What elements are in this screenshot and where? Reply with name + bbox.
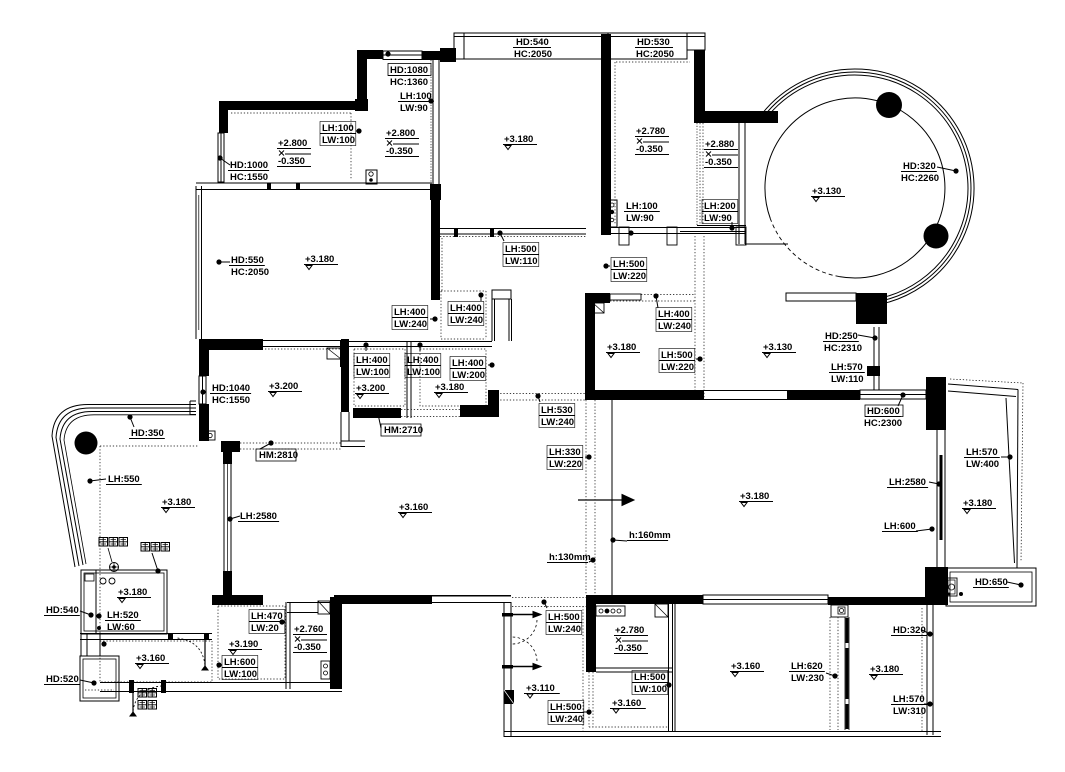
svg-text:LW:200: LW:200 [452,370,485,381]
svg-text:LW:400: LW:400 [966,459,999,470]
svg-text:HC:1550: HC:1550 [230,172,268,183]
svg-text:LH:570: LH:570 [893,694,925,705]
svg-text:HD:1080: HD:1080 [390,65,428,76]
svg-text:LW:90: LW:90 [704,213,732,224]
svg-text:-0.350: -0.350 [615,643,642,654]
svg-text:HD:550: HD:550 [231,255,264,266]
svg-text:-0.350: -0.350 [705,157,732,168]
svg-text:LH:400: LH:400 [452,358,484,369]
svg-text:LW:110: LW:110 [831,374,864,385]
svg-text:LW:310: LW:310 [893,706,926,717]
svg-text:LW:240: LW:240 [450,315,483,326]
svg-text:+3.130: +3.130 [812,186,841,197]
svg-text:+2.800: +2.800 [278,138,307,149]
svg-text:HD:600: HD:600 [867,406,900,417]
svg-text:+3.180: +3.180 [118,587,147,598]
svg-text:HD:540: HD:540 [46,605,79,616]
svg-text:LW:240: LW:240 [541,417,574,428]
svg-text:HD:1000: HD:1000 [230,160,268,171]
svg-text:LH:600: LH:600 [224,657,256,668]
svg-text:+3.180: +3.180 [435,382,464,393]
svg-text:LH:200: LH:200 [704,201,736,212]
svg-text:LW:60: LW:60 [107,622,135,633]
svg-text:h:130mm: h:130mm [549,552,591,563]
svg-text:LH:500: LH:500 [634,672,666,683]
svg-text:HC:2050: HC:2050 [231,267,269,278]
svg-text:LW:240: LW:240 [550,714,583,725]
svg-text:LH:520: LH:520 [107,610,139,621]
svg-text:LH:100: LH:100 [626,201,658,212]
svg-text:LH:2580: LH:2580 [240,511,277,522]
svg-text:+2.780: +2.780 [615,625,644,636]
svg-text:LW:240: LW:240 [394,319,427,330]
svg-text:HD:350: HD:350 [131,428,164,439]
svg-text:LH:600: LH:600 [884,521,916,532]
svg-text:HD:320: HD:320 [903,161,936,172]
svg-text:HC:2300: HC:2300 [864,418,902,429]
svg-text:+3.180: +3.180 [305,254,334,265]
svg-text:LH:570: LH:570 [966,447,998,458]
svg-text:+3.200: +3.200 [356,383,385,394]
svg-text:HC:1360: HC:1360 [390,77,428,88]
svg-text:+2.780: +2.780 [636,126,665,137]
svg-text:+3.160: +3.160 [731,661,760,672]
svg-text:HC:1550: HC:1550 [212,395,250,406]
svg-text:+3.130: +3.130 [763,342,792,353]
svg-text:LW:100: LW:100 [356,367,389,378]
svg-text:+3.160: +3.160 [136,653,165,664]
svg-text:HD:650: HD:650 [975,577,1008,588]
svg-text:HD:250: HD:250 [825,331,858,342]
svg-text:LH:500: LH:500 [548,612,580,623]
svg-text:LW:240: LW:240 [658,321,691,332]
svg-text:LW:240: LW:240 [548,624,581,635]
svg-text:LH:400: LH:400 [356,355,388,366]
svg-text:HD:1040: HD:1040 [212,383,250,394]
svg-text:HC:2310: HC:2310 [824,343,862,354]
svg-text:LH:500: LH:500 [550,702,582,713]
svg-text:LH:100: LH:100 [400,91,432,102]
svg-text:LH:400: LH:400 [407,355,439,366]
svg-text:+3.190: +3.190 [229,639,258,650]
svg-text:LH:500: LH:500 [661,350,693,361]
svg-text:+3.160: +3.160 [612,698,641,709]
svg-text:+3.180: +3.180 [963,498,992,509]
svg-text:HC:2260: HC:2260 [901,173,939,184]
svg-text:-0.350: -0.350 [636,144,663,155]
svg-text:HC:2050: HC:2050 [514,49,552,60]
svg-text:LW:110: LW:110 [505,256,538,267]
svg-text:LH:570: LH:570 [831,362,863,373]
svg-text:+3.110: +3.110 [526,683,555,694]
svg-text:+2.760: +2.760 [294,624,323,635]
svg-text:HD:530: HD:530 [637,37,670,48]
svg-text:h:160mm: h:160mm [629,530,671,541]
svg-text:HC:2050: HC:2050 [636,49,674,60]
svg-text:LW:100: LW:100 [634,684,667,695]
svg-text:LW:20: LW:20 [251,623,279,634]
svg-text:-0.350: -0.350 [386,146,413,157]
svg-text:HM:2810: HM:2810 [259,450,298,461]
svg-text:LW:100: LW:100 [407,367,440,378]
svg-text:LH:100: LH:100 [322,123,354,134]
svg-text:LH:620: LH:620 [791,661,823,672]
svg-text:LH:2580: LH:2580 [889,477,926,488]
svg-text:LW:90: LW:90 [626,213,654,224]
svg-text:+3.160: +3.160 [399,502,428,513]
svg-text:+3.180: +3.180 [504,134,533,145]
svg-text:+3.180: +3.180 [607,342,636,353]
svg-text:HD:540: HD:540 [516,37,549,48]
svg-text:HD:320: HD:320 [893,625,926,636]
svg-text:LH:330: LH:330 [549,447,581,458]
svg-text:HM:2710: HM:2710 [384,425,423,436]
svg-text:LH:500: LH:500 [613,259,645,270]
svg-text:LH:400: LH:400 [658,309,690,320]
svg-text:LH:530: LH:530 [541,405,573,416]
svg-text:LW:230: LW:230 [791,673,824,684]
svg-text:LH:400: LH:400 [450,303,482,314]
svg-text:HD:520: HD:520 [46,674,79,685]
svg-text:LW:100: LW:100 [224,669,257,680]
svg-text:+2.880: +2.880 [705,139,734,150]
svg-text:LH:550: LH:550 [108,474,140,485]
svg-text:+3.180: +3.180 [740,491,769,502]
svg-text:LH:500: LH:500 [505,244,537,255]
svg-text:LW:220: LW:220 [549,459,582,470]
svg-text:LH:470: LH:470 [251,611,283,622]
svg-text:LW:100: LW:100 [322,135,355,146]
svg-text:LW:220: LW:220 [613,271,646,282]
svg-text:-0.350: -0.350 [294,642,321,653]
svg-text:LW:90: LW:90 [400,103,428,114]
svg-text:+3.200: +3.200 [269,381,298,392]
svg-text:+3.180: +3.180 [870,664,899,675]
svg-text:LH:400: LH:400 [394,307,426,318]
svg-text:LW:220: LW:220 [661,362,694,373]
svg-text:+2.800: +2.800 [386,128,415,139]
svg-text:-0.350: -0.350 [278,156,305,167]
svg-text:+3.180: +3.180 [162,497,191,508]
